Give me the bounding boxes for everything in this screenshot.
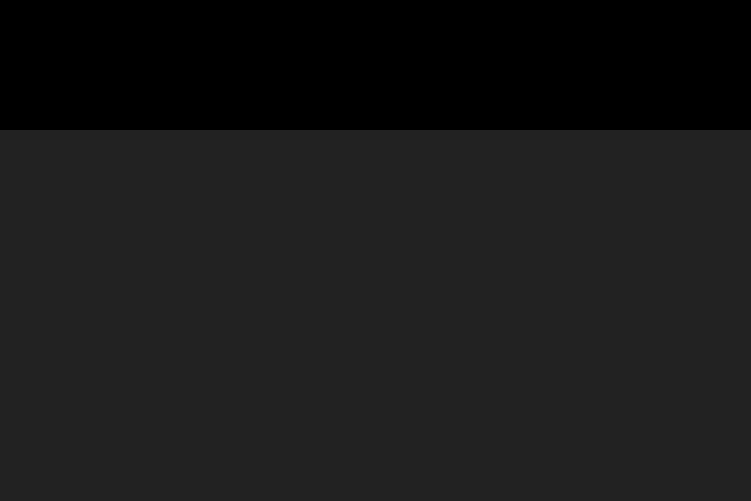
rendering-canvas [0,0,751,501]
sky [0,0,751,130]
aerial-rendering [0,0,751,501]
